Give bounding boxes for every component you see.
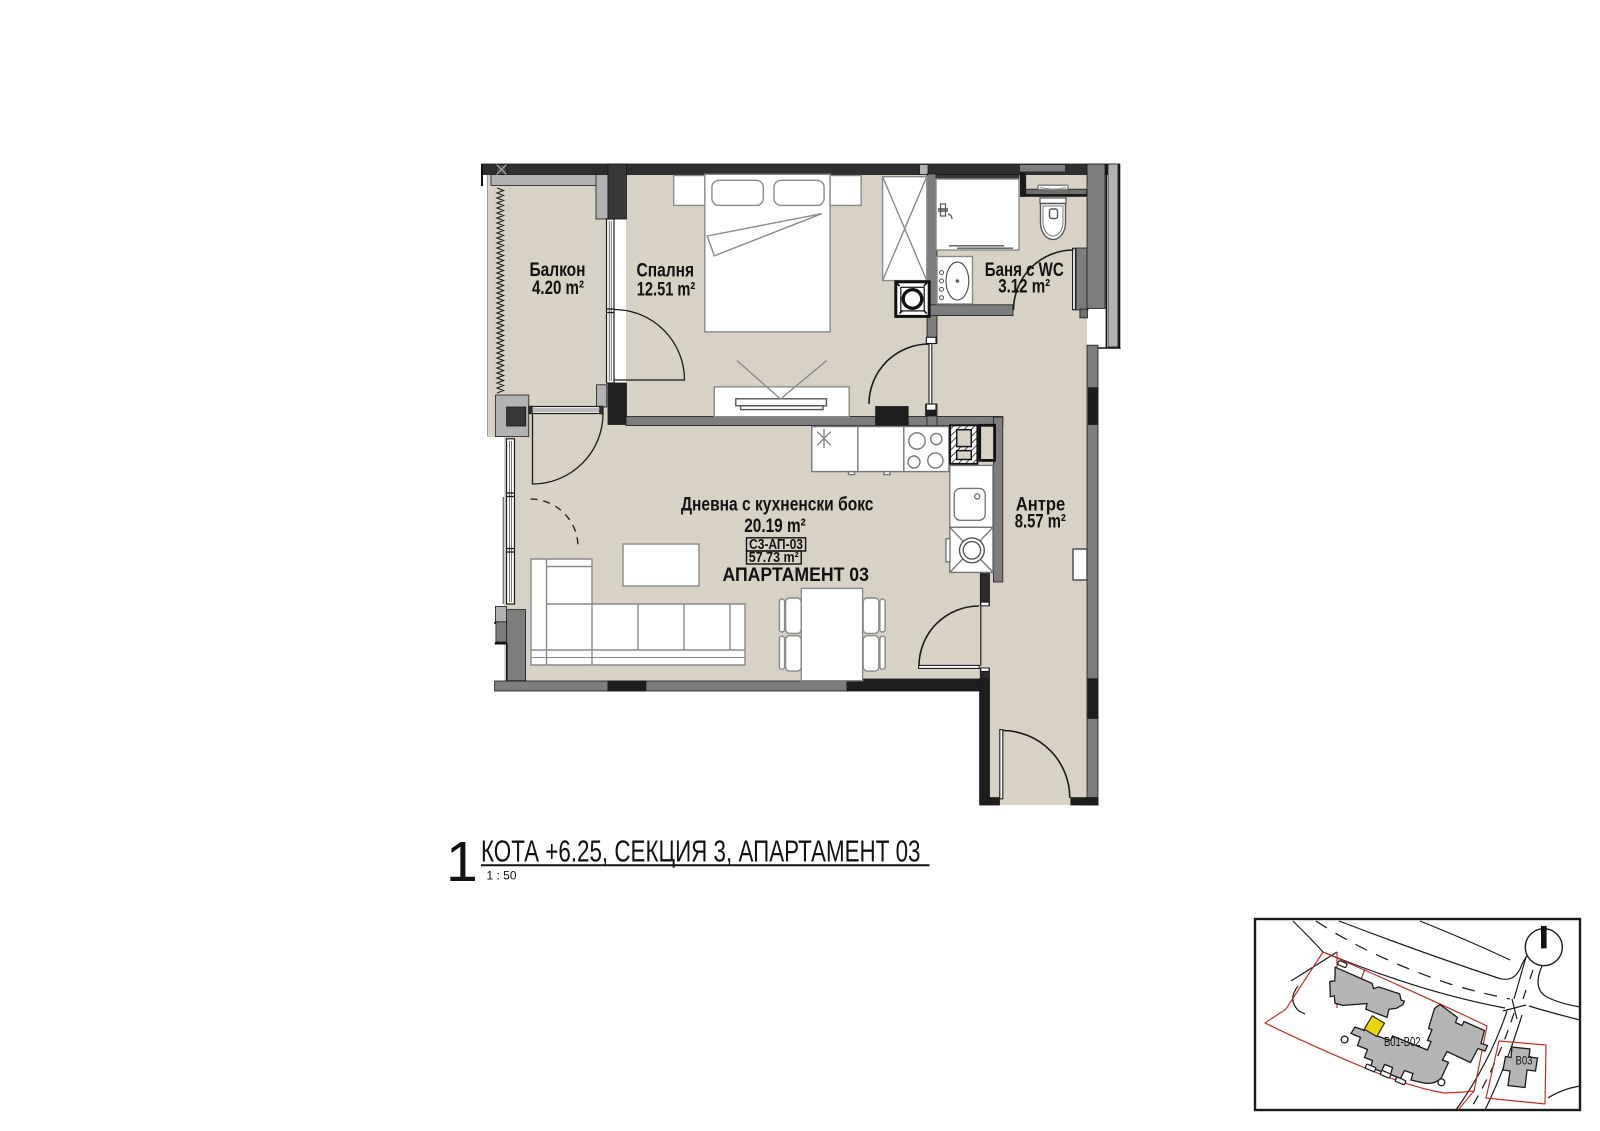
svg-text:B03: B03 xyxy=(1516,1056,1533,1068)
svg-text:1 : 50: 1 : 50 xyxy=(487,871,517,883)
svg-text:1: 1 xyxy=(446,830,478,894)
svg-text:3.12 m²: 3.12 m² xyxy=(998,277,1050,298)
svg-text:4.20 m²: 4.20 m² xyxy=(532,278,584,299)
svg-text:8.57 m²: 8.57 m² xyxy=(1015,511,1066,532)
svg-text:20.19 m²: 20.19 m² xyxy=(744,516,806,537)
svg-text:КОТА +6.25, СЕКЦИЯ 3, АПАРТАМЕ: КОТА +6.25, СЕКЦИЯ 3, АПАРТАМЕНТ 03 xyxy=(481,834,921,869)
svg-text:Дневна с кухненски бокс: Дневна с кухненски бокс xyxy=(681,495,874,516)
svg-text:Спалня: Спалня xyxy=(637,261,695,282)
svg-text:12.51 m²: 12.51 m² xyxy=(637,280,696,301)
svg-text:B01-B02: B01-B02 xyxy=(1384,1035,1421,1049)
svg-text:АПАРТАМЕНТ 03: АПАРТАМЕНТ 03 xyxy=(722,565,869,586)
svg-text:57.73 m²: 57.73 m² xyxy=(749,550,799,566)
